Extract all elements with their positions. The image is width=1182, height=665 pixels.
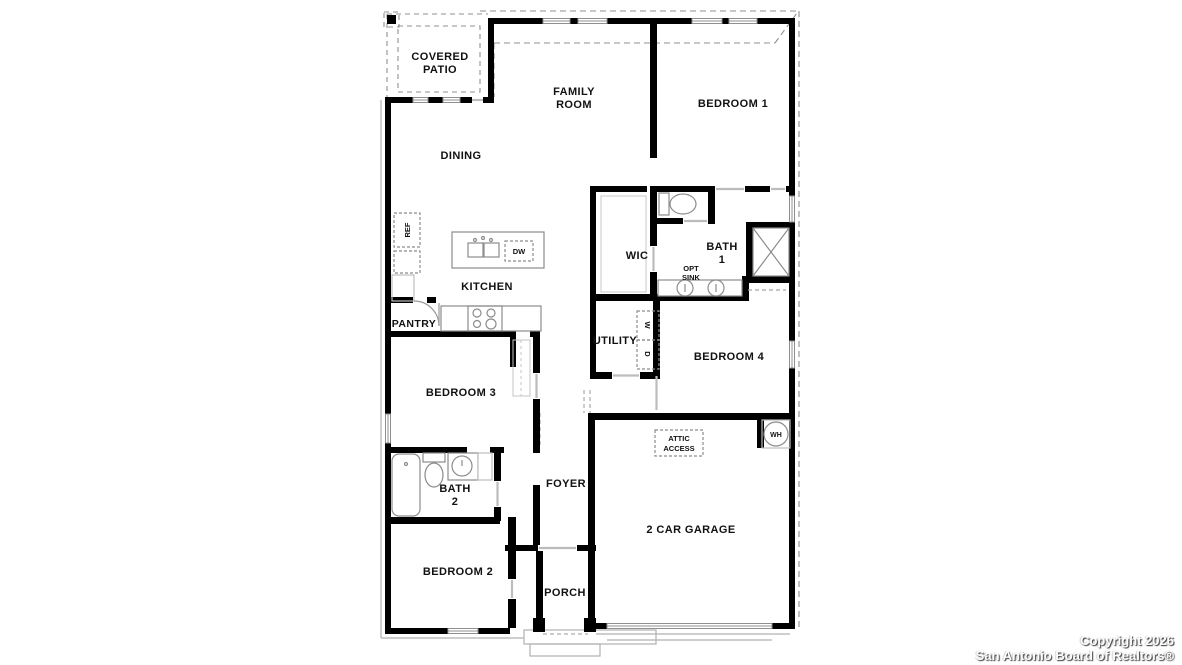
label-covered-patio-line2: PATIO (423, 64, 457, 76)
label-family-room-line1: FAMILY (553, 86, 595, 98)
label-dryer: D (643, 351, 652, 357)
copyright-line2: San Antonio Board of Realtors® (976, 648, 1174, 663)
label-bath2-line2: 2 (452, 496, 459, 508)
label-kitchen: KITCHEN (461, 281, 513, 293)
label-attic-line2: ACCESS (663, 444, 694, 453)
label-dw: DW (513, 247, 526, 256)
label-wh: WH (770, 432, 782, 439)
label-opt-sink-line2: SINK (682, 273, 701, 282)
label-wic: WIC (626, 250, 649, 262)
copyright-notice: Copyright 2026 San Antonio Board of Real… (976, 633, 1174, 663)
wic-shelving (601, 196, 646, 292)
label-utility: UTILITY (593, 335, 638, 347)
label-dining: DINING (441, 150, 482, 162)
label-foyer: FOYER (546, 478, 586, 490)
door-openings (472, 100, 785, 598)
label-attic-line1: ATTIC (668, 434, 690, 443)
kitchen-fixtures (392, 213, 544, 331)
label-ref: REF (403, 222, 412, 237)
label-porch: PORCH (544, 587, 586, 599)
label-bedroom2: BEDROOM 2 (423, 566, 493, 578)
floor-plan-drawing: COVERED PATIO FAMILY ROOM BEDROOM 1 DINI… (0, 0, 1182, 665)
label-bedroom1: BEDROOM 1 (698, 98, 768, 110)
label-bath1-line1: BATH (706, 241, 737, 253)
label-bath1-line2: 1 (719, 254, 726, 266)
label-bath2-line1: BATH (439, 483, 470, 495)
label-family-room-line2: ROOM (556, 99, 592, 111)
label-pantry: PANTRY (392, 318, 436, 330)
label-bedroom3: BEDROOM 3 (426, 387, 496, 399)
label-covered-patio-line1: COVERED (411, 51, 468, 63)
label-washer: W (643, 321, 652, 329)
garage-door-opening (607, 624, 772, 629)
patio-post (387, 15, 396, 24)
label-bedroom4: BEDROOM 4 (694, 351, 765, 363)
label-garage: 2 CAR GARAGE (646, 524, 735, 536)
label-opt-sink-line1: OPT (683, 264, 699, 273)
copyright-line1: Copyright 2026 (976, 633, 1174, 648)
floor-plan-page: COVERED PATIO FAMILY ROOM BEDROOM 1 DINI… (0, 0, 1182, 665)
